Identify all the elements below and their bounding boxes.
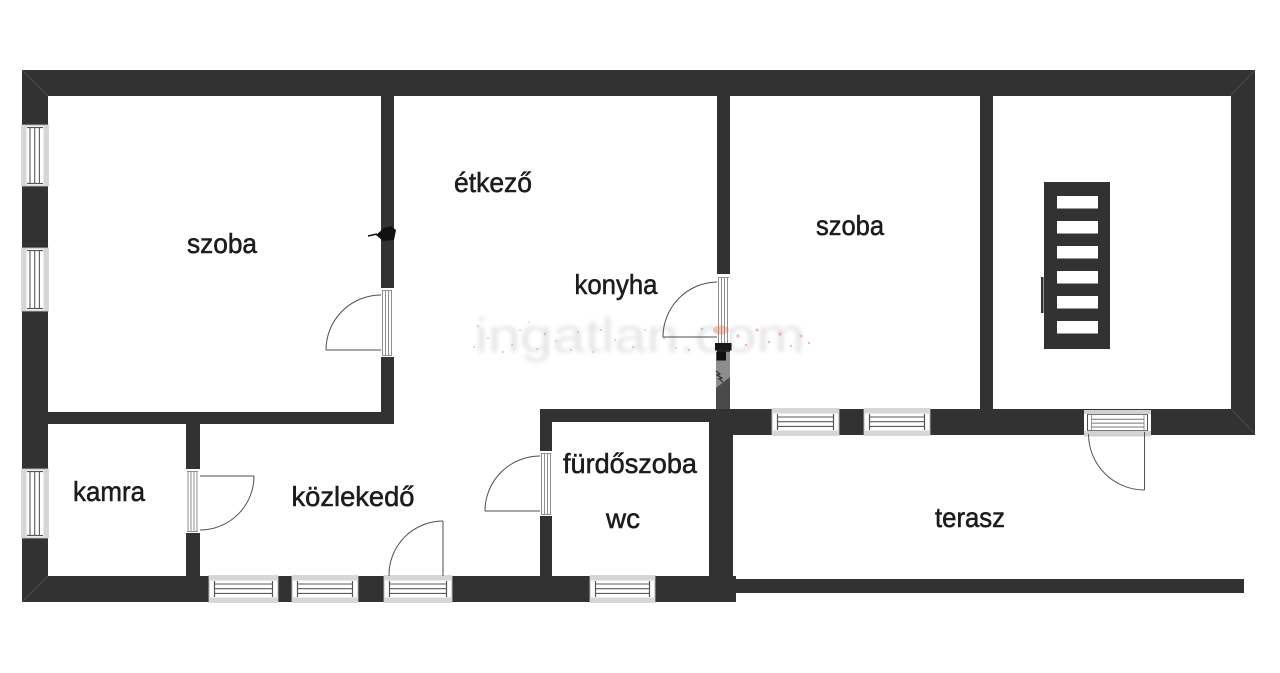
svg-text:közlekedő: közlekedő xyxy=(292,481,415,512)
svg-text:terasz: terasz xyxy=(935,502,1005,533)
svg-text:ingatlan.com: ingatlan.com xyxy=(475,310,805,363)
svg-text:szoba: szoba xyxy=(816,210,884,241)
svg-text:fürdőszoba: fürdőszoba xyxy=(563,448,697,479)
svg-text:kamra: kamra xyxy=(73,476,145,507)
svg-text:étkező: étkező xyxy=(454,167,532,198)
svg-text:konyha: konyha xyxy=(575,269,658,300)
svg-text:szoba: szoba xyxy=(187,228,257,259)
svg-text:wc: wc xyxy=(605,503,640,534)
